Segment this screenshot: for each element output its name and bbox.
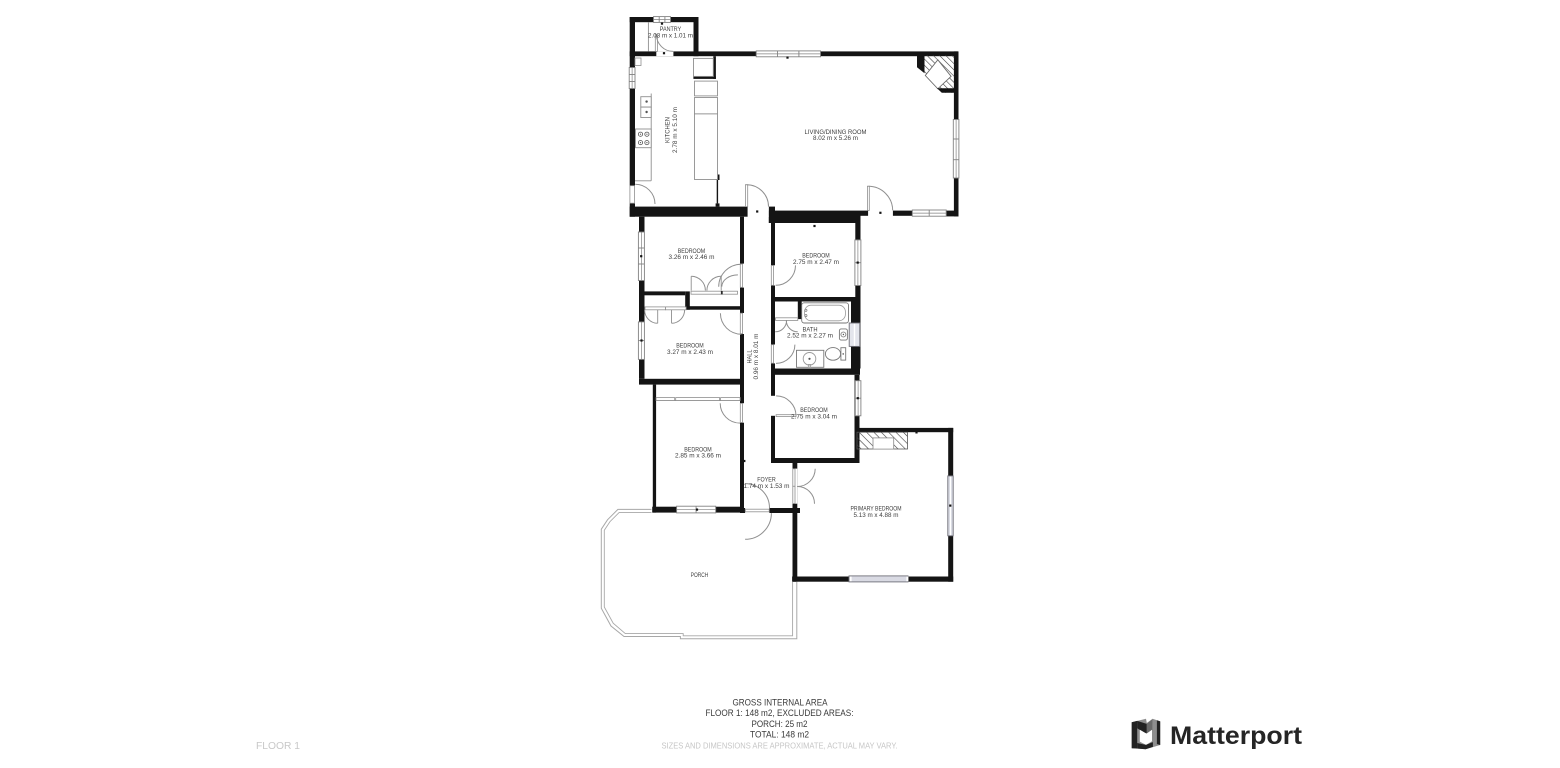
svg-text:5.13 m x 4.88 m: 5.13 m x 4.88 m <box>854 512 899 519</box>
svg-text:TOTAL: 148 m2: TOTAL: 148 m2 <box>750 730 809 740</box>
svg-text:1.74 m x 1.53 m: 1.74 m x 1.53 m <box>744 483 790 490</box>
svg-text:2.78 m x 5.10 m: 2.78 m x 5.10 m <box>672 107 679 153</box>
svg-text:3.27 m x 2.43 m: 3.27 m x 2.43 m <box>667 349 713 356</box>
svg-text:Matterport: Matterport <box>1170 722 1303 750</box>
svg-text:FLOOR 1: 148 m2, EXCLUDED AREA: FLOOR 1: 148 m2, EXCLUDED AREAS: <box>706 708 854 718</box>
svg-text:2.03 m x 1.01 m: 2.03 m x 1.01 m <box>648 33 693 40</box>
svg-text:GROSS INTERNAL AREA: GROSS INTERNAL AREA <box>733 698 829 708</box>
svg-text:2.52 m x 2.27 m: 2.52 m x 2.27 m <box>787 333 833 340</box>
svg-text:8.02 m x 5.26 m: 8.02 m x 5.26 m <box>813 135 858 142</box>
svg-text:2.75 m x 2.47 m: 2.75 m x 2.47 m <box>793 259 839 266</box>
svg-text:0.96 m x 8.01 m: 0.96 m x 8.01 m <box>753 334 760 380</box>
svg-text:3.26 m x 2.46 m: 3.26 m x 2.46 m <box>669 254 715 261</box>
svg-text:2.85 m x 3.66 m: 2.85 m x 3.66 m <box>675 453 721 460</box>
svg-text:PORCH: 25 m2: PORCH: 25 m2 <box>752 719 808 729</box>
svg-text:KITCHEN: KITCHEN <box>665 117 672 143</box>
svg-text:2.75 m x 3.04 m: 2.75 m x 3.04 m <box>791 413 837 420</box>
svg-text:PORCH: PORCH <box>691 572 709 579</box>
svg-text:SIZES AND DIMENSIONS ARE APPRO: SIZES AND DIMENSIONS ARE APPROXIMATE, AC… <box>662 742 898 751</box>
svg-text:FLOOR 1: FLOOR 1 <box>256 740 300 752</box>
